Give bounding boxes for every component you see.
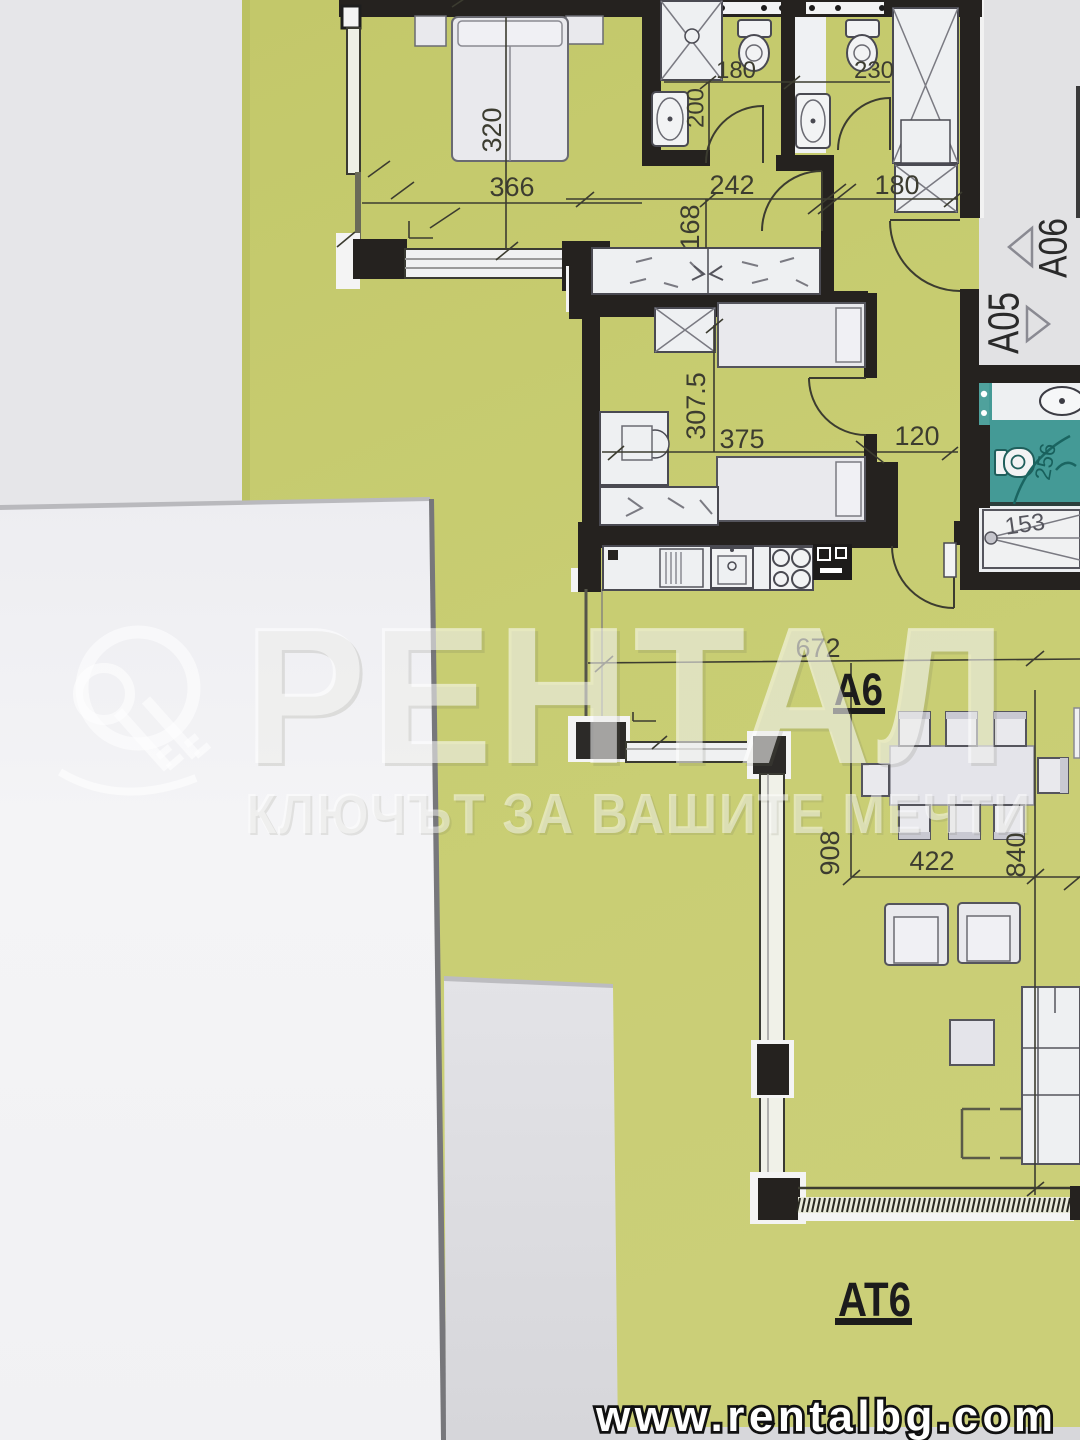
svg-text:153: 153 [1003,508,1046,540]
svg-text:307.5: 307.5 [681,372,711,440]
svg-text:366: 366 [489,172,534,202]
svg-text:200: 200 [682,88,709,128]
svg-text:РЕНТАЛ: РЕНТАЛ [243,587,1010,805]
svg-text:230: 230 [854,57,894,84]
svg-text:180: 180 [874,170,919,200]
svg-text:422: 422 [909,846,954,876]
svg-text:180: 180 [716,57,756,84]
svg-text:www.rentalbg.com: www.rentalbg.com [595,1392,1058,1440]
svg-text:КЛЮЧЪТ ЗА ВАШИТЕ МЕЧТИ: КЛЮЧЪТ ЗА ВАШИТЕ МЕЧТИ [245,782,1032,845]
svg-text:242: 242 [709,170,754,200]
svg-text:320: 320 [477,107,507,152]
svg-text:A05: A05 [980,292,1029,354]
svg-text:375: 375 [719,424,764,454]
svg-text:A06: A06 [1032,218,1076,278]
svg-text:168: 168 [675,204,705,249]
svg-text:120: 120 [894,421,939,451]
